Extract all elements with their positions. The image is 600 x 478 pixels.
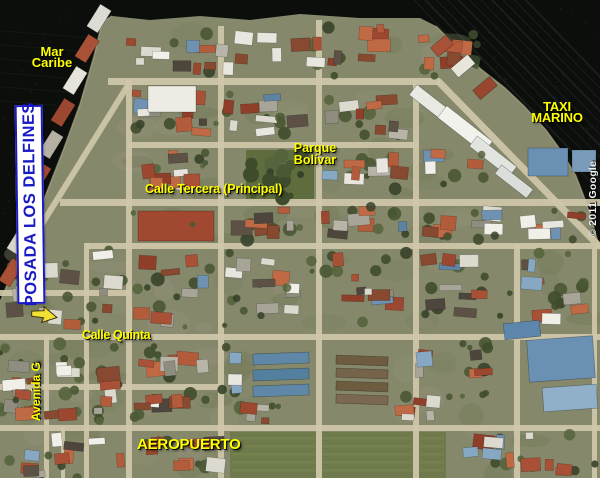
label-caribe: Caribe [20, 57, 84, 68]
label-aeropuerto: AEROPUERTO [137, 439, 241, 450]
label-taxi-marino: TAXI MARINO [515, 101, 599, 123]
label-calle-quinta: Calle Quinta [82, 330, 150, 341]
hotel-callout-posada-los-delfines: POSADA LOS DELFINES [15, 105, 46, 304]
label-calle-tercera: Calle Tercera (Principal) [145, 184, 282, 195]
satellite-map: Mar Caribe TAXI MARINO Parque Bolívar Ca… [0, 0, 600, 478]
label-mar-caribe: Mar Caribe [20, 46, 84, 68]
label-avenida-g: Avenida G [31, 362, 42, 421]
label-parque-bolivar: Parque Bolívar [283, 142, 347, 166]
google-copyright-watermark: © 2011 Google [587, 161, 599, 237]
satellite-imagery [0, 0, 600, 478]
